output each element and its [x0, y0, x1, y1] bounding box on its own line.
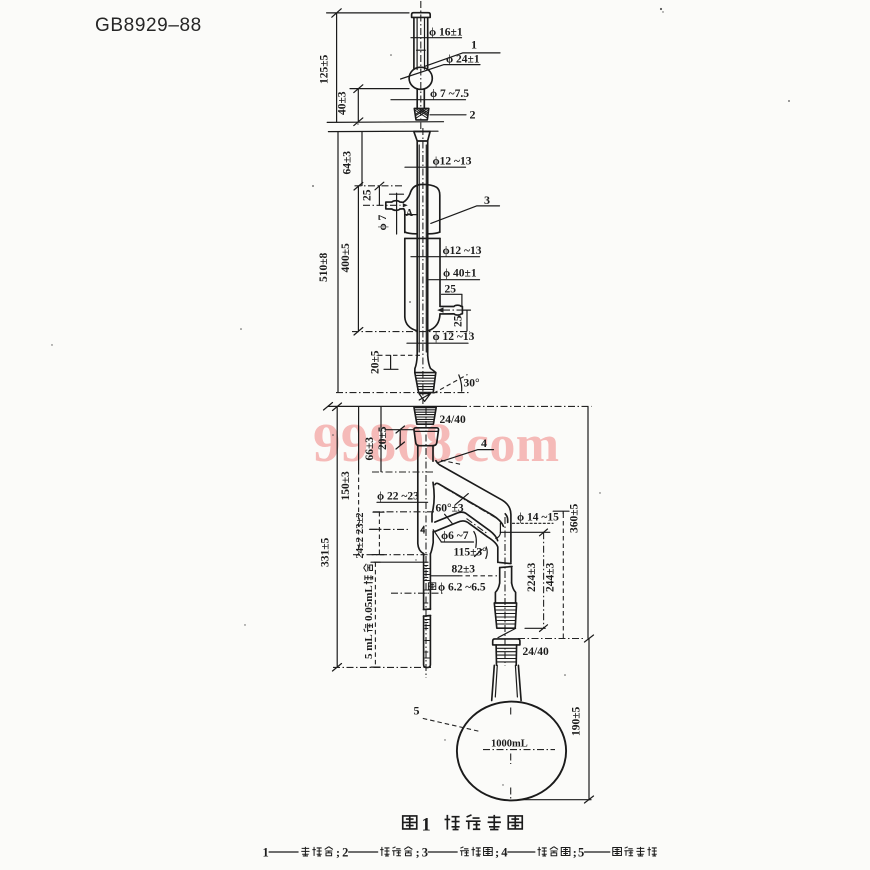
svg-text:ϕ12 ~13: ϕ12 ~13: [433, 156, 472, 168]
svg-text:224±3: 224±3: [526, 562, 538, 592]
svg-text:20±5: 20±5: [377, 426, 389, 450]
svg-text:0.05mL: 0.05mL: [363, 585, 375, 621]
svg-text:5: 5: [414, 704, 420, 718]
svg-text:ϕ 7 ~7.5: ϕ 7 ~7.5: [430, 88, 469, 100]
svg-text:ϕ6 ~7: ϕ6 ~7: [441, 530, 469, 542]
svg-text:331±5: 331±5: [320, 537, 332, 567]
svg-text:1000mL: 1000mL: [491, 738, 528, 749]
svg-text:3: 3: [484, 193, 490, 207]
svg-text:24/40: 24/40: [523, 646, 549, 658]
svg-text:82±3: 82±3: [452, 563, 476, 575]
svg-text:ϕ 7: ϕ 7: [377, 214, 389, 230]
svg-text:190±5: 190±5: [571, 706, 583, 736]
svg-text:25: 25: [445, 283, 457, 295]
svg-text:1: 1: [263, 846, 269, 860]
svg-text:;: ;: [495, 846, 499, 860]
svg-text:115±3°: 115±3°: [454, 546, 488, 558]
svg-text:400±5: 400±5: [340, 243, 352, 273]
svg-text:ϕ12 ~13: ϕ12 ~13: [443, 245, 482, 257]
svg-text:ϕ 12 ~13: ϕ 12 ~13: [433, 331, 475, 343]
svg-text:;: ;: [573, 846, 577, 860]
svg-text:ϕ 40±1: ϕ 40±1: [443, 268, 477, 280]
svg-text:23±2: 23±2: [355, 512, 366, 534]
svg-text:A: A: [406, 208, 414, 219]
svg-text:360±5: 360±5: [569, 503, 581, 533]
svg-text:ϕ 16±1: ϕ 16±1: [429, 27, 463, 39]
svg-text:24/40: 24/40: [440, 414, 466, 426]
svg-text:64±3: 64±3: [342, 151, 354, 175]
svg-text:ϕ 24±1: ϕ 24±1: [446, 53, 480, 65]
svg-text:ϕ 14 ~15: ϕ 14 ~15: [517, 512, 559, 524]
svg-text:20±5: 20±5: [370, 350, 382, 374]
svg-text:4: 4: [501, 846, 508, 860]
svg-text:244±3: 244±3: [545, 562, 557, 592]
svg-text:5: 5: [578, 846, 584, 860]
svg-text:24±2: 24±2: [355, 537, 366, 559]
svg-text:40±3: 40±3: [337, 91, 349, 115]
svg-text:4: 4: [481, 436, 487, 450]
svg-text:125±5: 125±5: [319, 54, 331, 84]
svg-text:5 mL: 5 mL: [363, 634, 375, 659]
svg-text:510±8: 510±8: [318, 252, 330, 282]
svg-text:1: 1: [471, 38, 477, 52]
svg-text:25: 25: [453, 315, 465, 327]
svg-text:;: ;: [336, 846, 340, 860]
svg-text:3: 3: [422, 846, 428, 860]
svg-text:ϕ 6.2 ~6.5: ϕ 6.2 ~6.5: [438, 581, 486, 593]
svg-text:;: ;: [416, 846, 420, 860]
svg-text:60°±3: 60°±3: [436, 502, 464, 514]
svg-text:1: 1: [422, 816, 431, 836]
svg-text:ϕ 22 ~23: ϕ 22 ~23: [377, 491, 419, 503]
svg-text:2: 2: [342, 846, 348, 860]
svg-text:150±3: 150±3: [340, 471, 352, 501]
svg-text:2: 2: [470, 107, 476, 121]
svg-text:30°: 30°: [464, 378, 481, 390]
svg-text:66±3: 66±3: [364, 437, 376, 461]
svg-text:25: 25: [362, 189, 374, 201]
svg-text:GB8929–88: GB8929–88: [95, 15, 202, 36]
